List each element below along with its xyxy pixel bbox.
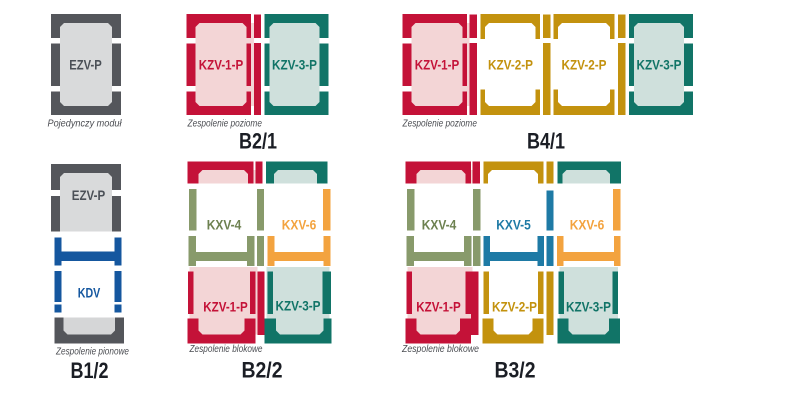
svg-text:B3/2: B3/2 bbox=[495, 358, 536, 383]
svg-text:B4/1: B4/1 bbox=[527, 129, 565, 154]
svg-text:KZV-2-P: KZV-2-P bbox=[492, 299, 537, 315]
svg-text:KXV-4: KXV-4 bbox=[422, 217, 457, 233]
svg-text:EZV-P: EZV-P bbox=[72, 187, 105, 203]
svg-text:KXV-4: KXV-4 bbox=[207, 217, 242, 233]
svg-text:KZV-3-P: KZV-3-P bbox=[566, 299, 611, 315]
svg-text:Zespolenie pionowe: Zespolenie pionowe bbox=[55, 346, 129, 358]
svg-text:KXV-6: KXV-6 bbox=[570, 217, 605, 233]
svg-text:KZV-1-P: KZV-1-P bbox=[203, 299, 247, 315]
svg-text:Zespolenie blokowe: Zespolenie blokowe bbox=[189, 343, 263, 355]
svg-text:EZV-P: EZV-P bbox=[69, 56, 102, 72]
svg-text:KZV-3-P: KZV-3-P bbox=[276, 298, 321, 314]
svg-text:KZV-1-P: KZV-1-P bbox=[416, 299, 460, 315]
svg-text:B1/2: B1/2 bbox=[71, 358, 109, 383]
svg-text:KZV-1-P: KZV-1-P bbox=[199, 56, 243, 72]
svg-text:B2/2: B2/2 bbox=[242, 358, 283, 383]
svg-text:Zespolenie poziome: Zespolenie poziome bbox=[402, 118, 477, 130]
svg-text:KXV-6: KXV-6 bbox=[282, 217, 317, 233]
svg-text:B2/1: B2/1 bbox=[239, 129, 277, 154]
svg-text:KDV: KDV bbox=[78, 285, 101, 301]
svg-text:KXV-5: KXV-5 bbox=[496, 217, 531, 233]
svg-text:KZV-1-P: KZV-1-P bbox=[415, 56, 459, 72]
svg-text:KZV-2-P: KZV-2-P bbox=[488, 56, 533, 72]
svg-text:KZV-3-P: KZV-3-P bbox=[637, 56, 682, 72]
svg-text:KZV-2-P: KZV-2-P bbox=[562, 56, 607, 72]
svg-text:Zespolenie blokowe: Zespolenie blokowe bbox=[401, 343, 479, 355]
svg-text:KZV-3-P: KZV-3-P bbox=[272, 56, 317, 72]
svg-text:Pojedynczy moduł: Pojedynczy moduł bbox=[48, 118, 123, 130]
